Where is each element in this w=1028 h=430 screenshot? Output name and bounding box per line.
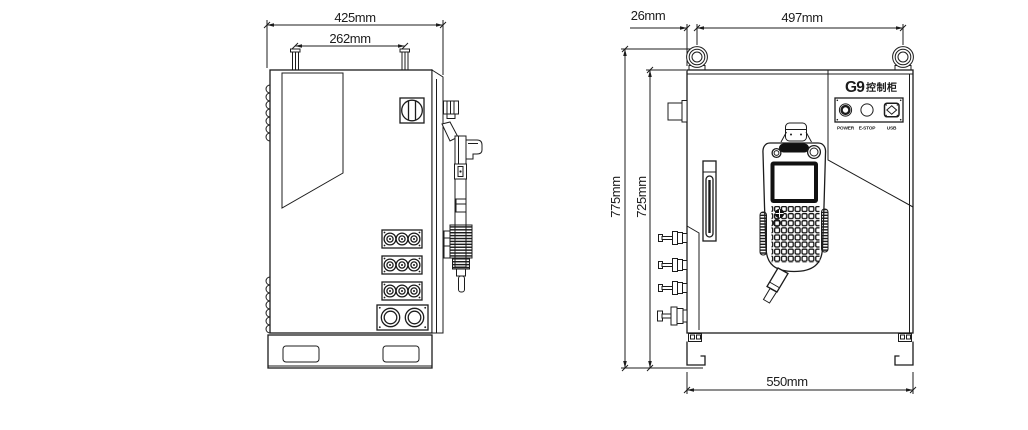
dim-label-550: 550mm — [766, 374, 807, 389]
dim-handle-span: 262mm — [292, 31, 408, 49]
dim-eyebolt-span: 497mm — [697, 10, 906, 45]
base-plinth — [268, 335, 432, 368]
control-plate — [835, 98, 903, 122]
two-view-cabinet-drawing: 425mm 262mm — [0, 0, 1028, 430]
pendant-screen — [775, 166, 815, 200]
dim-label-775: 775mm — [608, 176, 623, 217]
bottom-tab-left — [689, 334, 702, 342]
cable-gland-2 — [659, 259, 688, 272]
cable-gland-4 — [658, 307, 688, 325]
foot-right — [895, 342, 913, 366]
dim-label-725: 725mm — [634, 176, 649, 217]
rotary-switch — [400, 98, 424, 123]
eyebolt-right — [893, 47, 914, 70]
torch-nozzle — [457, 269, 466, 276]
pendant-hanger — [786, 123, 807, 141]
power-label: POWER — [837, 126, 855, 132]
dim-label-497: 497mm — [781, 10, 822, 25]
estop-label: E-STOP — [859, 126, 877, 132]
eyebolt-left — [687, 47, 708, 70]
dim-label-425: 425mm — [334, 10, 375, 25]
door-handle — [703, 161, 716, 241]
dim-label-26: 26mm — [631, 8, 666, 23]
dim-label-262: 262mm — [329, 31, 370, 46]
cable-gland-plate-1 — [382, 230, 422, 248]
model-suffix-label: 控制柜 — [866, 81, 898, 94]
dim-base-width: 550mm — [684, 372, 916, 394]
welding-torch — [442, 101, 482, 292]
lifting-handle-right — [400, 49, 410, 70]
side-view: 425mm 262mm — [264, 10, 482, 368]
torch-ribbed-grip — [450, 225, 472, 258]
lifting-handle-left — [291, 49, 301, 70]
model-label: G9 — [845, 79, 865, 96]
pendant-grip-right — [822, 209, 829, 252]
side-connector — [668, 101, 687, 123]
torch-tip — [459, 276, 465, 292]
torch-handle — [466, 140, 482, 159]
bottom-tab-right — [899, 334, 912, 342]
cable-gland-1 — [659, 232, 688, 245]
pendant-grip-left — [760, 212, 767, 255]
connector-plate — [377, 305, 428, 330]
cable-gland-3 — [659, 282, 688, 295]
usb-label: USB — [887, 126, 897, 132]
cable-gland-plate-3 — [382, 282, 422, 300]
technical-drawing-canvas: 425mm 262mm — [0, 0, 1028, 430]
cable-gland-plate-2 — [382, 256, 422, 274]
front-view: 26mm 497mm 775mm 725 — [608, 8, 916, 394]
foot-left — [687, 342, 705, 366]
